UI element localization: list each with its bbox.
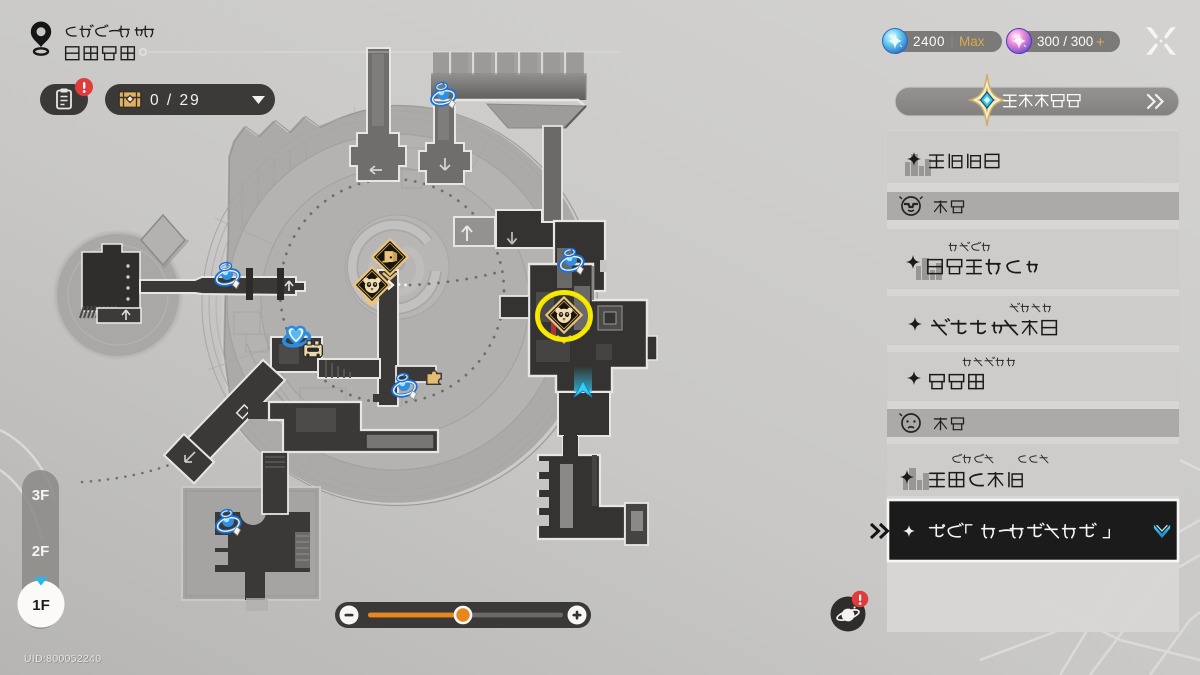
svg-text:+: + [1096,34,1105,51]
svg-text:2F: 2F [32,543,50,560]
svg-text:2400: 2400 [913,34,945,49]
svg-text:300 / 300: 300 / 300 [1037,34,1093,49]
svg-text:3F: 3F [32,487,50,504]
svg-text:UID:800052240: UID:800052240 [24,653,101,665]
svg-text:0 / 29: 0 / 29 [150,92,201,109]
svg-text:1F: 1F [32,597,50,614]
svg-text:Max: Max [959,34,985,49]
